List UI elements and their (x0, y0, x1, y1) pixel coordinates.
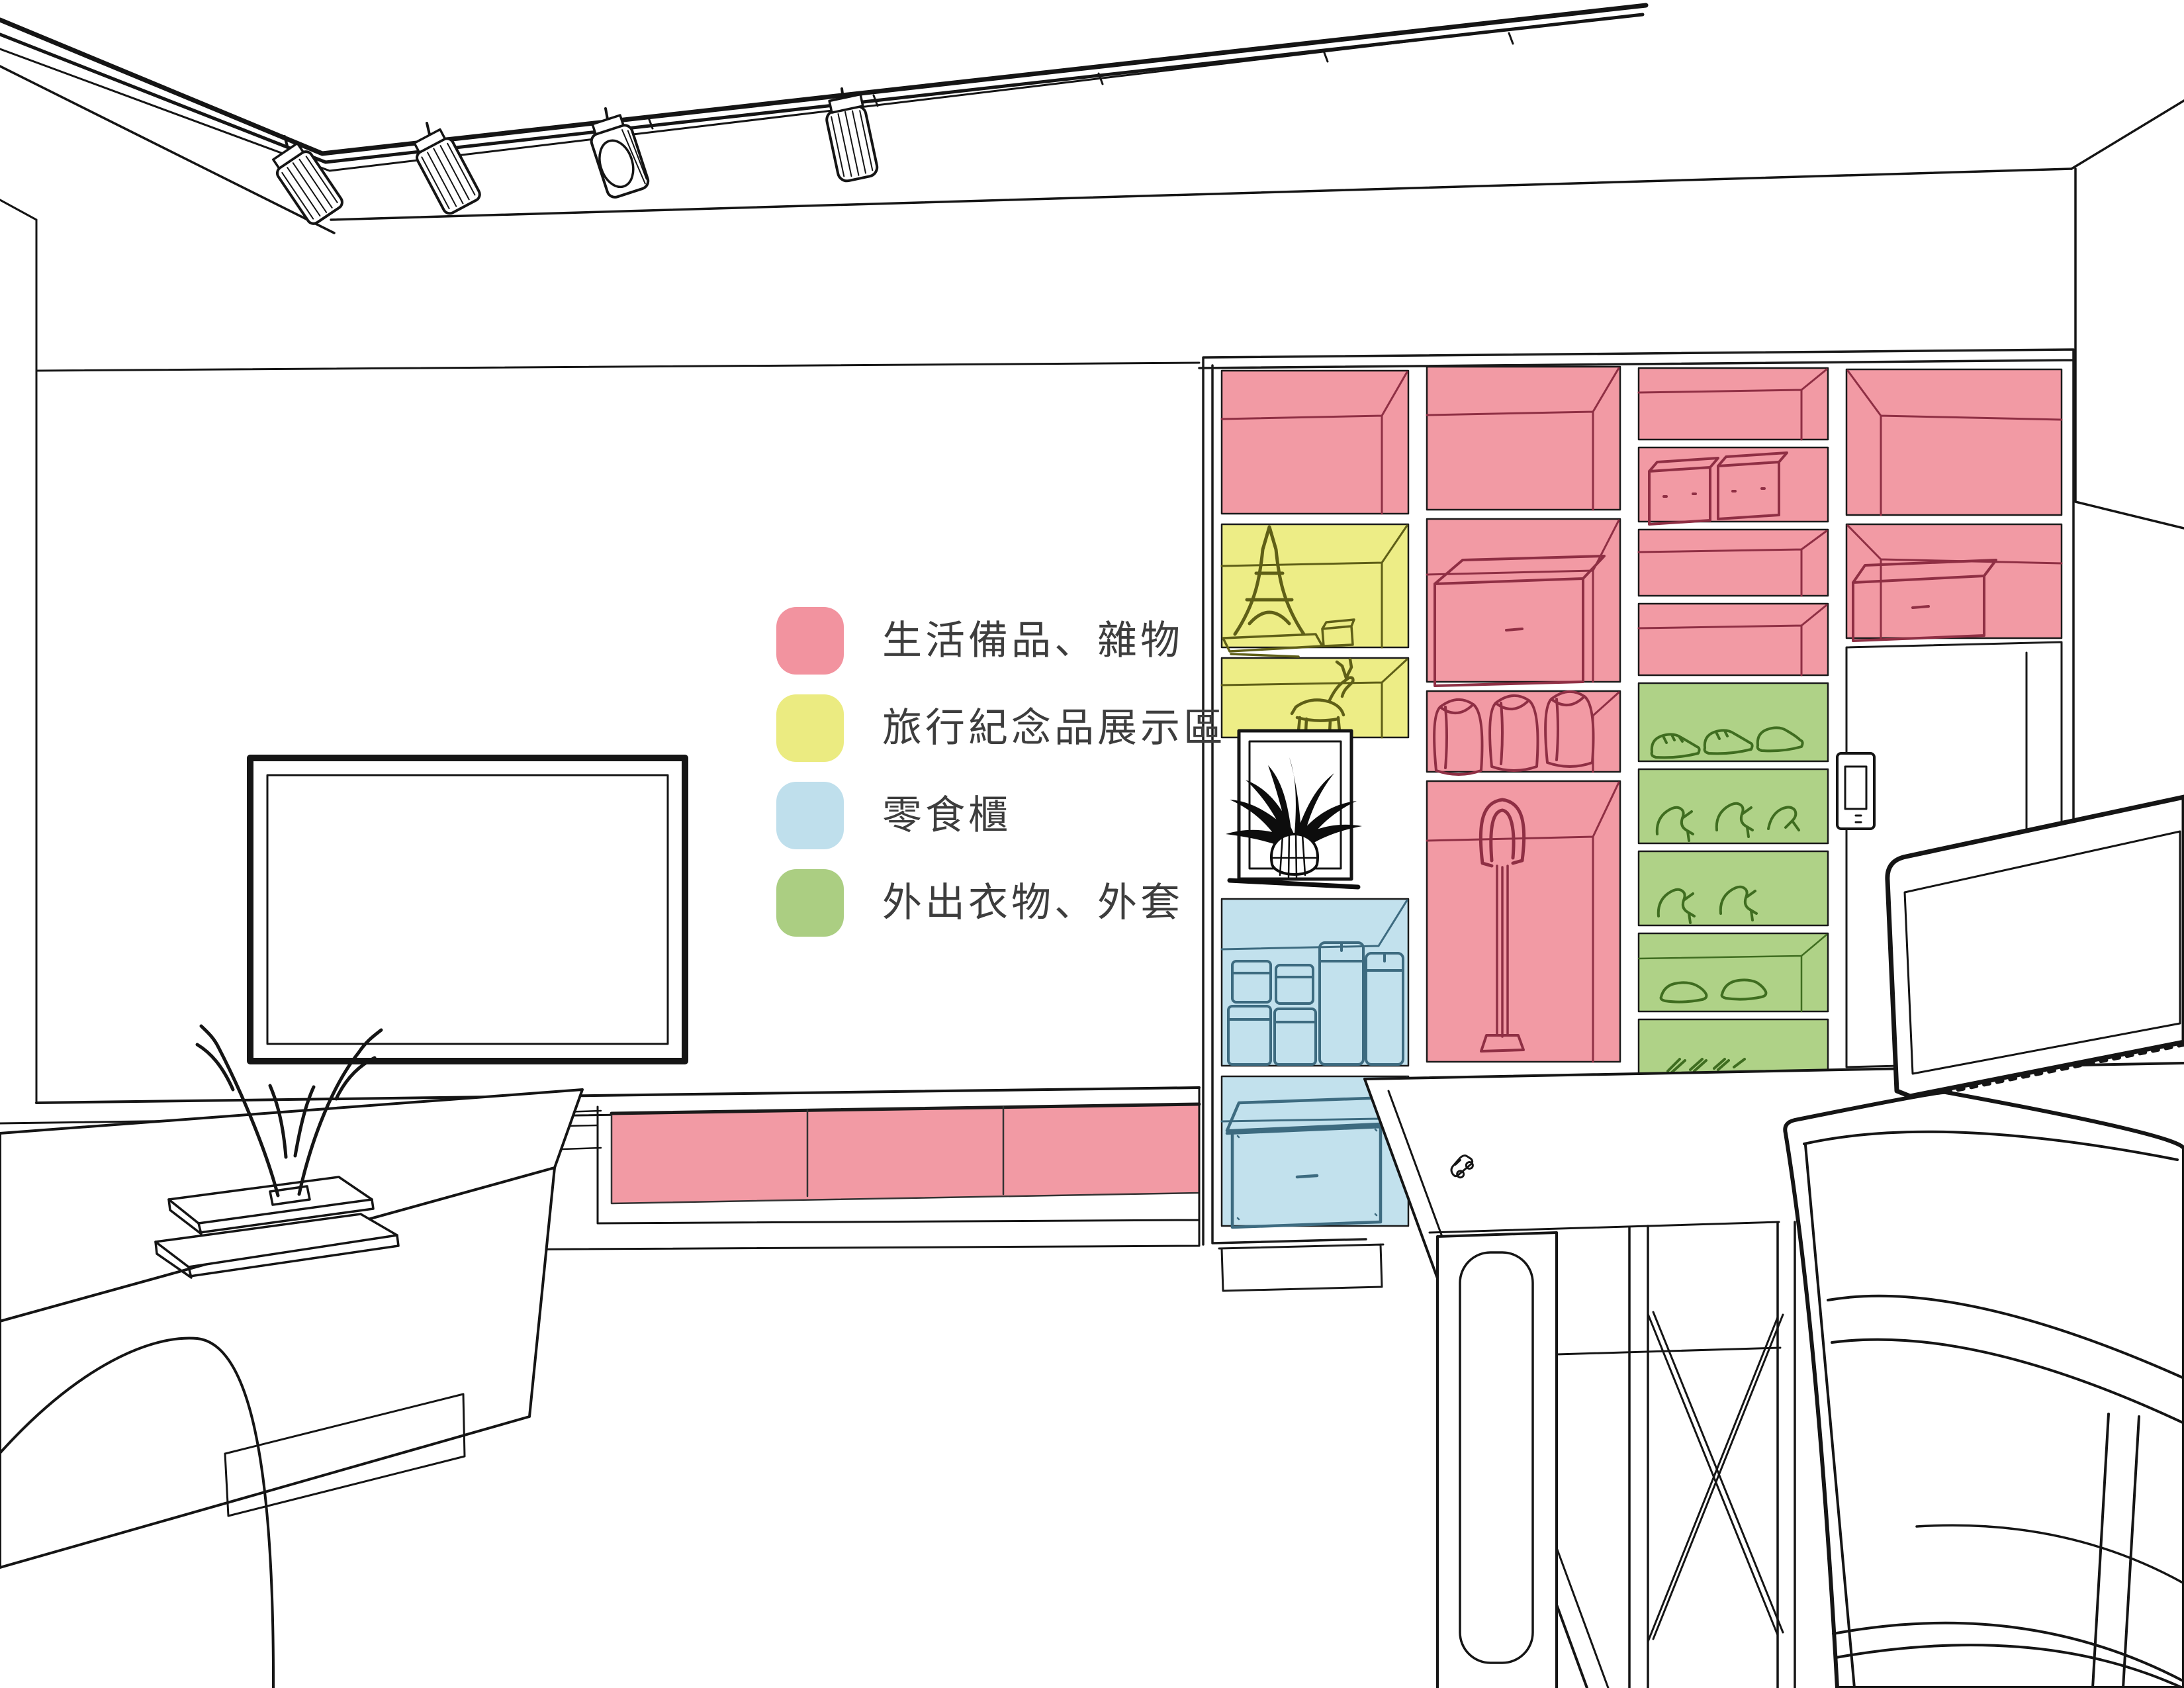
legend-label-outdoor-clothes: 外出衣物、外套 (882, 869, 1183, 937)
legend-label-travel-souvenirs: 旅行紀念品展示區 (882, 694, 1226, 762)
legend-swatch-daily-supplies (776, 607, 844, 675)
cabinet-col3 (1639, 368, 1828, 1076)
spotlight-1 (269, 136, 345, 226)
frame-base (1230, 880, 1358, 887)
legend-swatch-travel-souvenirs (776, 694, 844, 762)
coffee-table (0, 1026, 582, 1568)
legend-swatch-snack-cabinet (776, 782, 844, 849)
dining-chair (1785, 1092, 2184, 1688)
legend: 生活備品、雜物 旅行紀念品展示區 零食櫃 外出衣物、外套 (776, 607, 1226, 937)
table-leg-left (1437, 1233, 1557, 1688)
spotlight-3 (586, 109, 651, 199)
intercom-panel (1837, 753, 1874, 829)
track-rail (0, 5, 1646, 171)
plant-vase (1271, 834, 1318, 874)
legend-swatch-outdoor-clothes (776, 869, 844, 937)
legend-label-daily-supplies: 生活備品、雜物 (882, 607, 1183, 675)
ceiling-corner-right (2071, 101, 2184, 528)
soffit-edge (331, 169, 2071, 220)
plant-frame (1226, 731, 1362, 887)
wall-corner-left (0, 200, 36, 1103)
legend-item-daily-supplies: 生活備品、雜物 (776, 607, 1226, 675)
wall-tv (250, 758, 685, 1061)
legend-item-outdoor-clothes: 外出衣物、外套 (776, 869, 1226, 937)
cabinet-kick (1219, 1244, 1383, 1291)
legend-label-snack-cabinet: 零食櫃 (882, 782, 1011, 849)
legend-item-travel-souvenirs: 旅行紀念品展示區 (776, 694, 1226, 762)
wall-band (36, 363, 1199, 371)
room-rendering: 生活備品、雜物 旅行紀念品展示區 零食櫃 外出衣物、外套 (0, 0, 2184, 1688)
spotlight-4 (823, 89, 878, 183)
console-drawers-pink (612, 1104, 1199, 1203)
legend-item-snack-cabinet: 零食櫃 (776, 782, 1226, 849)
chair-back (1785, 1092, 2184, 1688)
